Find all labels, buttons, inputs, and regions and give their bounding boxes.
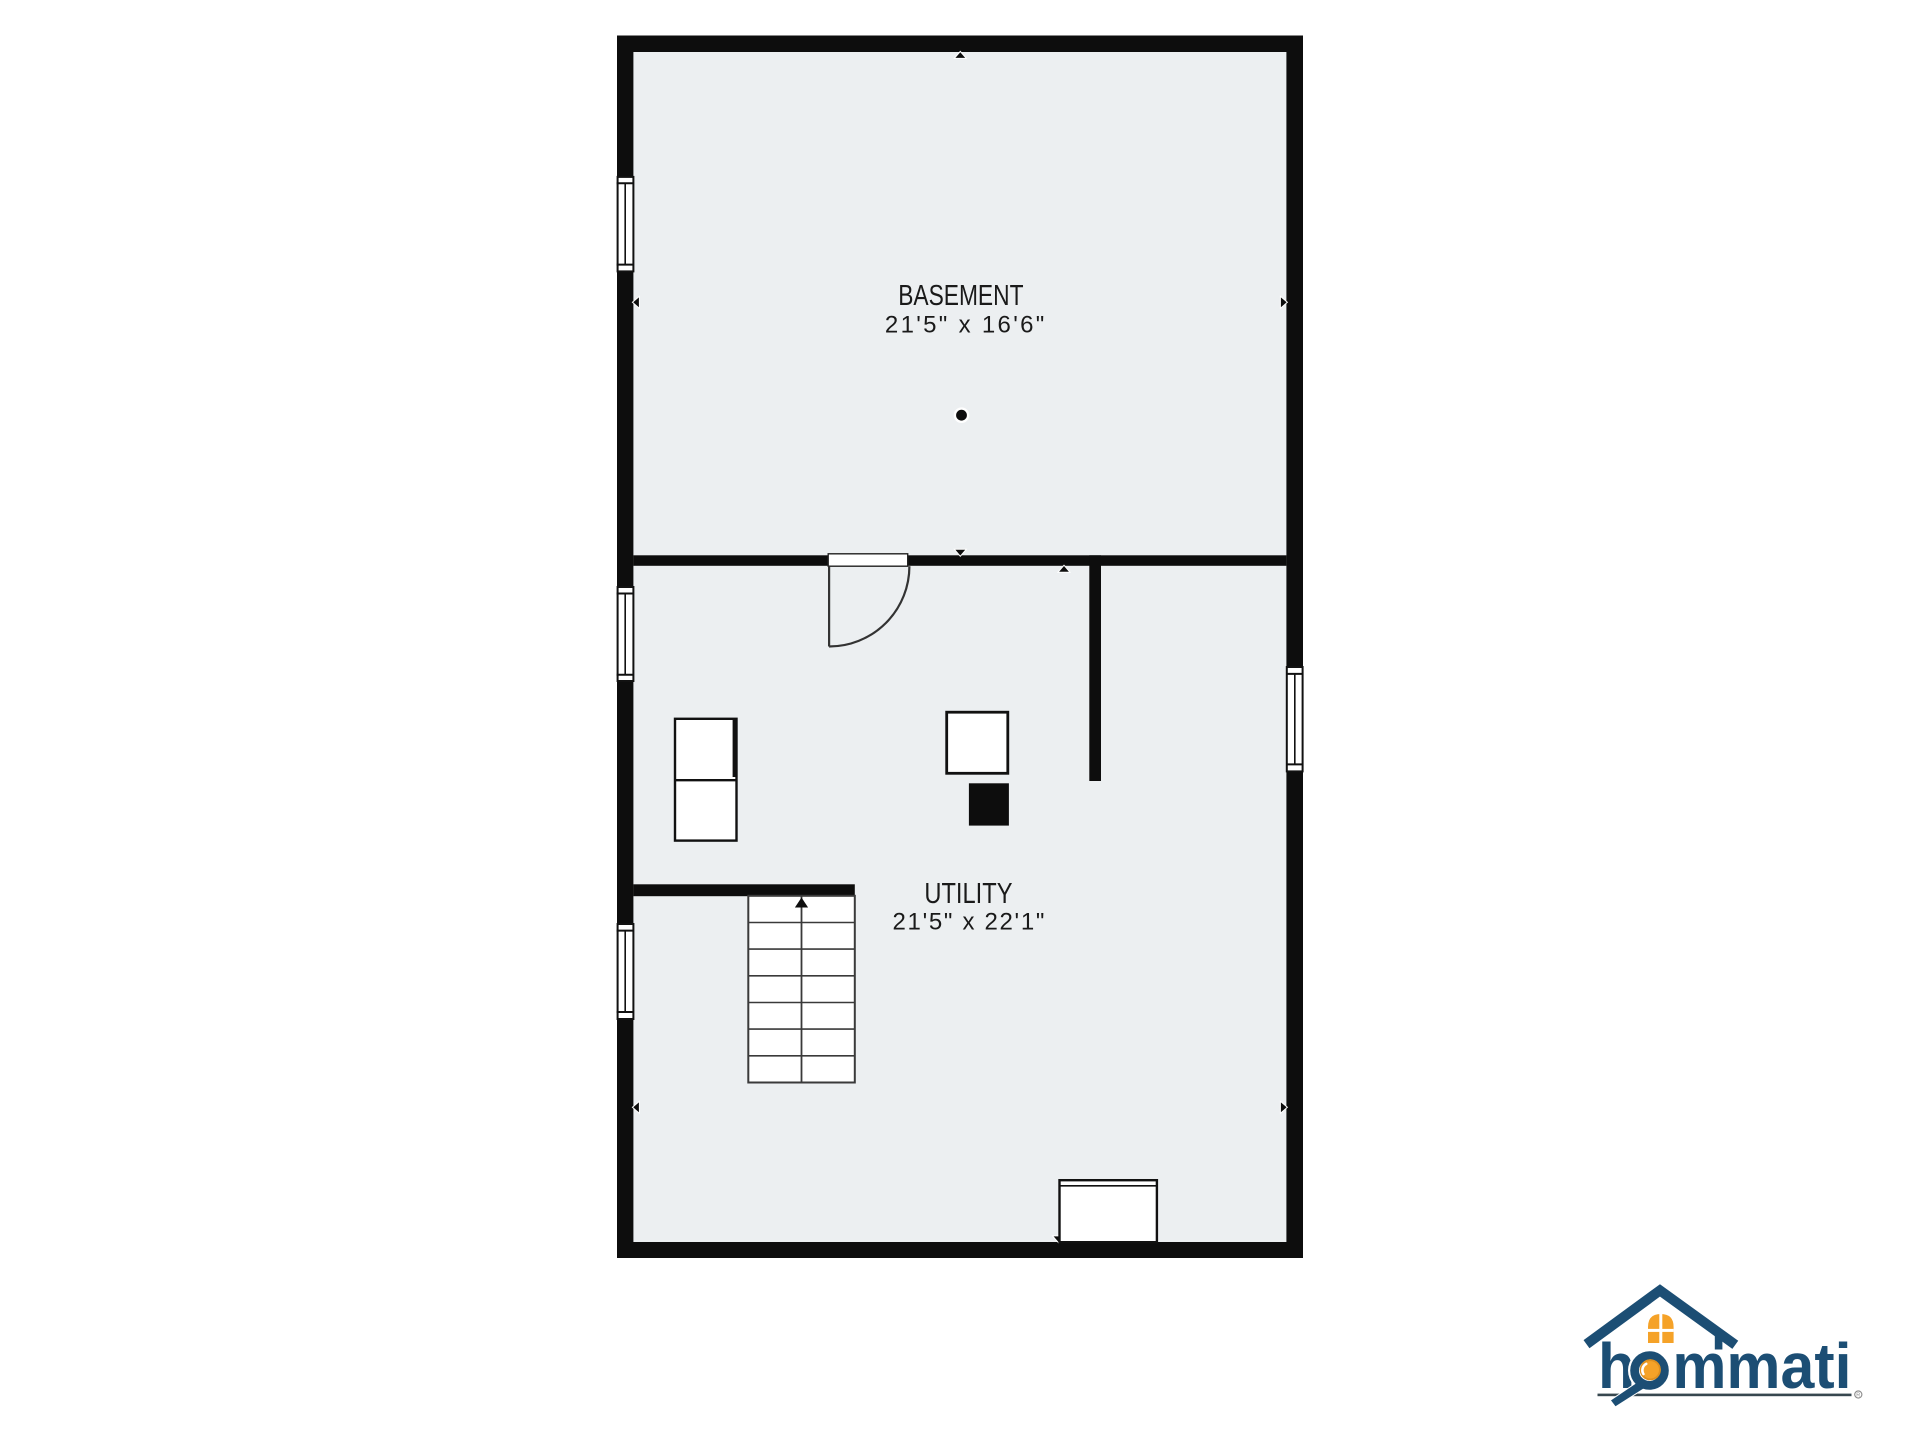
svg-text:UTILITY: UTILITY xyxy=(924,878,1012,910)
svg-text:R: R xyxy=(1856,1393,1860,1399)
svg-text:21'5" x 22'1": 21'5" x 22'1" xyxy=(893,908,1045,935)
svg-text:BASEMENT: BASEMENT xyxy=(898,280,1024,312)
svg-text:21'5" x 16'6": 21'5" x 16'6" xyxy=(885,311,1044,338)
